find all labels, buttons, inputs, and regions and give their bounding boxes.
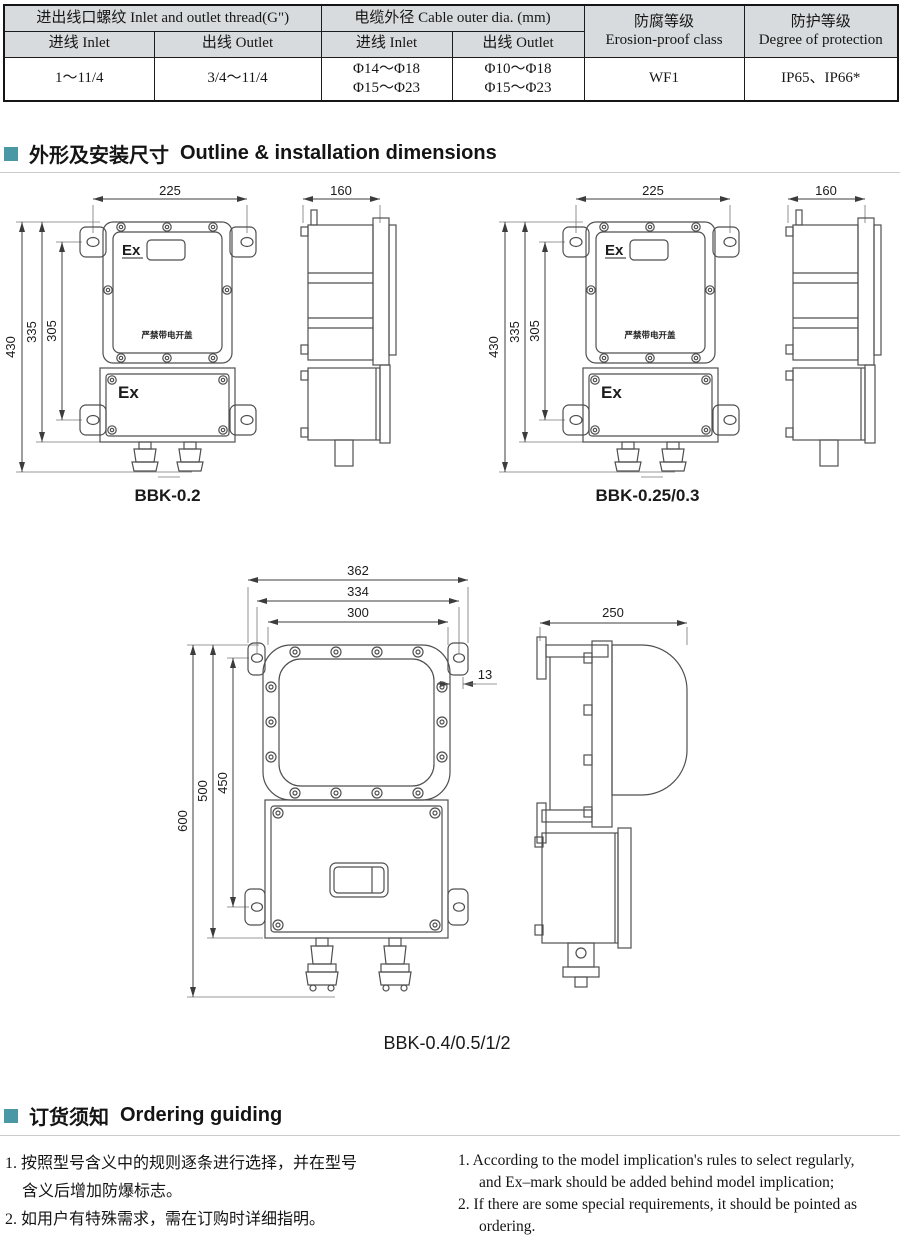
dim-lug-offset: 13 bbox=[478, 667, 492, 682]
big-lower-box bbox=[265, 800, 448, 938]
value-erosion: WF1 bbox=[584, 57, 744, 101]
header-erosion-en: Erosion-proof class bbox=[587, 31, 742, 50]
section-outline-heading: 外形及安装尺寸 Outline & installation dimension… bbox=[4, 139, 497, 168]
note-en-line1: 1. According to the model implication's … bbox=[458, 1150, 898, 1172]
dim-width: 225 bbox=[159, 183, 181, 198]
header-protection: 防护等级 Degree of protection bbox=[744, 5, 898, 57]
warning-plate-label: 严禁带电开盖 bbox=[140, 330, 193, 340]
section-bullet-icon bbox=[4, 147, 18, 161]
section-ordering-heading: 订货须知 Ordering guiding bbox=[4, 1101, 282, 1130]
ordering-notes-en: 1. According to the model implication's … bbox=[458, 1150, 898, 1238]
ordering-notes-zh: 1. 按照型号含义中的规则逐条进行选择，并在型号 含义后增加防爆标志。 2. 如… bbox=[5, 1150, 450, 1234]
side-upper-assembly bbox=[537, 637, 687, 843]
note-zh-line2: 含义后增加防爆标志。 bbox=[5, 1178, 450, 1206]
dim-hole-span: 305 bbox=[44, 320, 59, 342]
cable-glands bbox=[306, 938, 411, 991]
ex-mark-label-lower: Ex bbox=[118, 383, 139, 402]
value-cable-outlet-line1: Φ10～Φ18 bbox=[455, 60, 582, 79]
lower-box: Ex bbox=[100, 368, 235, 442]
divider bbox=[0, 1135, 900, 1136]
value-cable-inlet-line2: Φ15～Φ23 bbox=[324, 79, 450, 98]
big-cover bbox=[263, 645, 450, 800]
header-thread-group: 进出线口螺纹 Inlet and outlet thread(G") bbox=[4, 5, 321, 31]
dim-height-total: 430 bbox=[3, 336, 18, 358]
datasheet-page: 进出线口螺纹 Inlet and outlet thread(G") 电缆外径 … bbox=[0, 0, 900, 1241]
drawing-bbk02-side: 160 bbox=[278, 185, 423, 485]
drawing-bbk04-side: 250 bbox=[525, 575, 715, 1025]
value-protection: IP65、IP66* bbox=[744, 57, 898, 101]
subheader-cable-outlet: 出线 Outlet bbox=[452, 31, 584, 57]
value-cable-inlet-line1: Φ14～Φ18 bbox=[324, 60, 450, 79]
header-protection-zh: 防护等级 bbox=[747, 13, 896, 32]
value-thread-outlet: 3/4～11/4 bbox=[154, 57, 321, 101]
drawing-bbk025-side bbox=[763, 185, 900, 485]
dim-width-total: 362 bbox=[347, 563, 369, 578]
header-erosion-zh: 防腐等级 bbox=[587, 13, 742, 32]
header-protection-en: Degree of protection bbox=[747, 31, 896, 50]
value-cable-outlet: Φ10～Φ18 Φ15～Φ23 bbox=[452, 57, 584, 101]
note-en-line4: ordering. bbox=[458, 1216, 898, 1238]
dim-height-total: 600 bbox=[175, 810, 190, 832]
side-lower-box bbox=[301, 365, 390, 466]
drawing-bbk025-front bbox=[483, 185, 783, 487]
note-en-line3: 2. If there are some special requirement… bbox=[458, 1194, 898, 1216]
dim-hole-span: 334 bbox=[347, 584, 369, 599]
note-en-line2: and Ex–mark should be added behind model… bbox=[458, 1172, 898, 1194]
section-outline-en: Outline & installation dimensions bbox=[180, 142, 497, 165]
dim-height-body: 500 bbox=[195, 780, 210, 802]
value-cable-outlet-line2: Φ15～Φ23 bbox=[455, 79, 582, 98]
divider bbox=[0, 172, 900, 173]
section-ordering-zh: 订货须知 bbox=[29, 1101, 109, 1130]
dim-depth: 250 bbox=[602, 605, 624, 620]
section-bullet-icon bbox=[4, 1109, 18, 1123]
drawing-bbk04-front: 362 334 300 600 500 450 13 bbox=[175, 557, 520, 1027]
side-lower-box bbox=[535, 828, 631, 987]
header-erosion: 防腐等级 Erosion-proof class bbox=[584, 5, 744, 57]
dim-hole-span-v: 450 bbox=[215, 772, 230, 794]
dim-depth: 160 bbox=[330, 183, 352, 198]
dim-cover-span: 300 bbox=[347, 605, 369, 620]
subheader-thread-outlet: 出线 Outlet bbox=[154, 31, 321, 57]
note-zh-line3: 2. 如用户有特殊需求，需在订购时详细指明。 bbox=[5, 1206, 450, 1234]
section-outline-zh: 外形及安装尺寸 bbox=[29, 139, 169, 168]
subheader-cable-inlet: 进线 Inlet bbox=[321, 31, 452, 57]
section-ordering-en: Ordering guiding bbox=[120, 1104, 282, 1127]
spec-table: 进出线口螺纹 Inlet and outlet thread(G") 电缆外径 … bbox=[3, 4, 899, 102]
label-bbk02: BBK-0.2 bbox=[95, 486, 240, 506]
upper-cover: Ex 严禁带电开盖 bbox=[103, 222, 232, 363]
note-zh-line1: 1. 按照型号含义中的规则逐条进行选择，并在型号 bbox=[5, 1150, 450, 1178]
ex-mark-label: Ex bbox=[122, 242, 141, 259]
dim-height-body: 335 bbox=[24, 321, 39, 343]
label-bbk025: BBK-0.25/0.3 bbox=[575, 486, 720, 506]
value-cable-inlet: Φ14～Φ18 Φ15～Φ23 bbox=[321, 57, 452, 101]
drawing-bbk02-front: 225 430 335 305 bbox=[0, 185, 300, 487]
header-cable-group: 电缆外径 Cable outer dia. (mm) bbox=[321, 5, 584, 31]
value-thread-inlet: 1～11/4 bbox=[4, 57, 154, 101]
side-body bbox=[301, 210, 396, 365]
label-bbk04: BBK-0.4/0.5/1/2 bbox=[327, 1033, 567, 1054]
subheader-thread-inlet: 进线 Inlet bbox=[4, 31, 154, 57]
